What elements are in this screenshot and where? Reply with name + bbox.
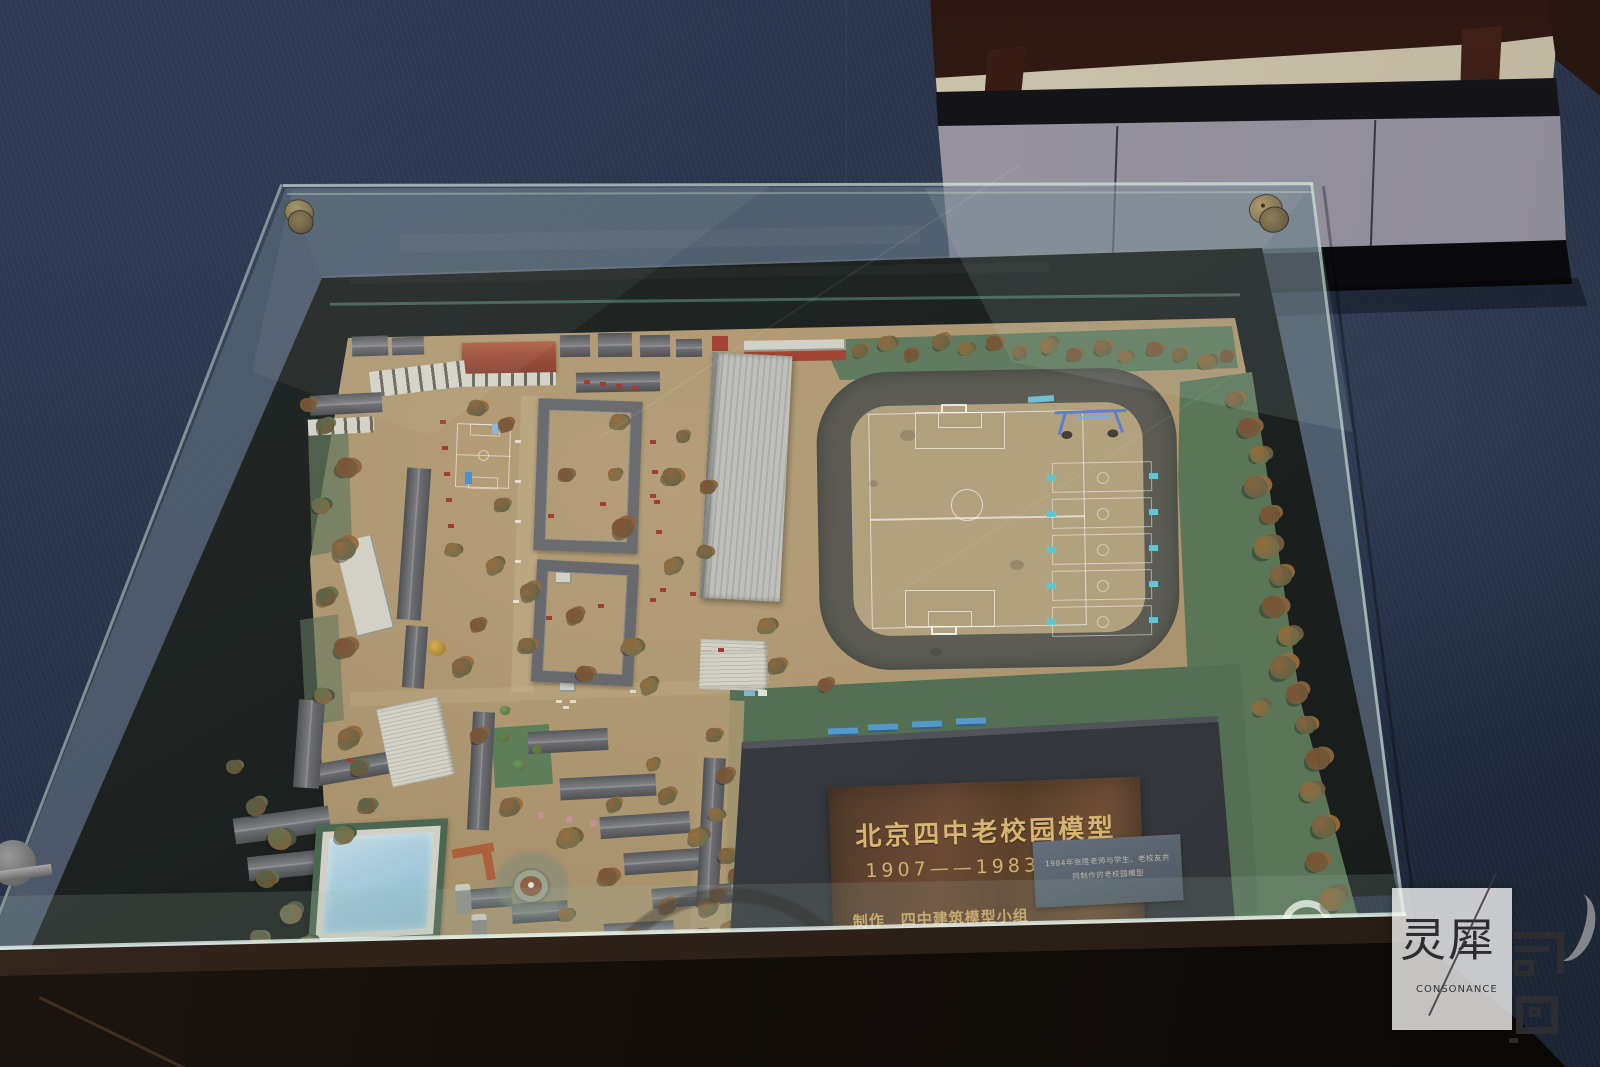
exhibit-photo: 北京四中老校园模型 1907——1983 制作 四中建筑模型小组 指导老师 张 … [0, 0, 1600, 1067]
watermark-logo-en: CONSONANCE [1416, 984, 1498, 995]
watermark: 灵犀 CONSONANCE [1392, 888, 1512, 1030]
watermark-logo-cn: 灵犀 [1400, 904, 1496, 970]
